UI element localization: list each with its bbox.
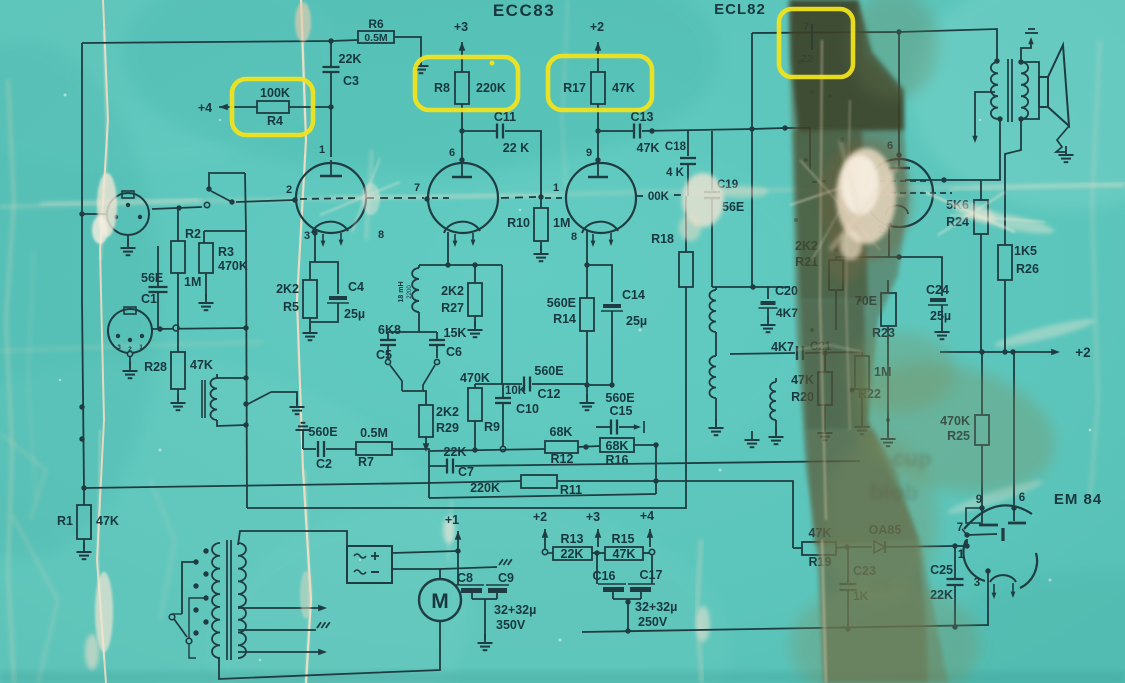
svg-text:4K7: 4K7 xyxy=(776,306,798,320)
svg-text:R3: R3 xyxy=(218,245,234,259)
svg-text:R5: R5 xyxy=(283,300,299,314)
svg-text:R9: R9 xyxy=(484,420,500,434)
svg-text:18 mH: 18 mH xyxy=(398,281,405,302)
svg-text:4K7: 4K7 xyxy=(771,340,794,354)
svg-text:220K: 220K xyxy=(476,81,506,95)
svg-text:+3: +3 xyxy=(454,20,468,34)
svg-text:6: 6 xyxy=(449,147,455,159)
svg-text:7: 7 xyxy=(803,21,809,33)
svg-text:22 K: 22 K xyxy=(503,141,529,155)
svg-text:C9: C9 xyxy=(498,571,514,585)
svg-text:C12: C12 xyxy=(538,387,561,401)
svg-text:3: 3 xyxy=(974,577,980,589)
svg-text:C16: C16 xyxy=(593,569,616,583)
svg-text:8: 8 xyxy=(571,231,577,243)
svg-text:C20: C20 xyxy=(775,284,798,298)
svg-text:R8: R8 xyxy=(434,81,450,95)
svg-text:68K: 68K xyxy=(550,425,573,439)
svg-text:8: 8 xyxy=(378,229,384,241)
svg-text:C2: C2 xyxy=(316,457,332,471)
svg-text:C4: C4 xyxy=(348,280,364,294)
svg-text:2K2: 2K2 xyxy=(441,284,464,298)
svg-text:2K2: 2K2 xyxy=(276,282,299,296)
svg-text:C6: C6 xyxy=(446,345,462,359)
svg-text:0.5M: 0.5M xyxy=(360,426,388,440)
svg-text:560E: 560E xyxy=(547,296,576,310)
svg-text:47K: 47K xyxy=(96,514,119,528)
svg-text:+1: +1 xyxy=(445,513,459,527)
svg-text:C18: C18 xyxy=(665,141,687,153)
svg-text:1: 1 xyxy=(139,344,143,351)
svg-text:1: 1 xyxy=(958,549,965,561)
svg-text:47K: 47K xyxy=(637,141,660,155)
svg-text:560E: 560E xyxy=(308,425,337,439)
svg-text:R6: R6 xyxy=(368,17,384,31)
svg-text:22K: 22K xyxy=(444,445,467,459)
svg-text:1: 1 xyxy=(319,144,325,156)
svg-text:0.5M: 0.5M xyxy=(364,32,388,44)
svg-text:470K: 470K xyxy=(460,371,490,385)
svg-text:+2: +2 xyxy=(1075,345,1090,360)
svg-text:47K: 47K xyxy=(190,358,213,372)
svg-text:C10: C10 xyxy=(516,402,539,416)
svg-text:15K: 15K xyxy=(444,326,467,340)
svg-text:1M: 1M xyxy=(553,216,570,230)
svg-text:32+32µ: 32+32µ xyxy=(494,603,536,617)
svg-text:+4: +4 xyxy=(198,101,212,115)
svg-text:R7: R7 xyxy=(358,455,374,469)
svg-text:R27: R27 xyxy=(441,301,464,315)
svg-text:7: 7 xyxy=(957,522,963,534)
svg-text:R10: R10 xyxy=(507,216,530,230)
svg-text:7: 7 xyxy=(414,182,420,194)
svg-text:EM 84: EM 84 xyxy=(1054,491,1102,508)
svg-text:R1: R1 xyxy=(57,514,73,528)
svg-text:cup: cup xyxy=(892,446,931,471)
svg-text:R2: R2 xyxy=(185,227,201,241)
svg-text:C24: C24 xyxy=(926,283,949,297)
svg-text:32+32µ: 32+32µ xyxy=(635,600,677,614)
svg-text:560E: 560E xyxy=(605,391,634,405)
svg-text:4 K: 4 K xyxy=(666,167,685,179)
svg-text:6: 6 xyxy=(1019,492,1025,504)
svg-text:R4: R4 xyxy=(267,114,283,128)
svg-text:C14: C14 xyxy=(622,288,645,302)
svg-text:9: 9 xyxy=(976,494,982,506)
svg-text:C7: C7 xyxy=(458,465,474,479)
svg-text:+2: +2 xyxy=(533,510,547,524)
svg-text:22K: 22K xyxy=(561,547,584,561)
svg-text:R15: R15 xyxy=(612,532,635,546)
svg-text:100K: 100K xyxy=(260,86,290,100)
svg-text:10K: 10K xyxy=(505,385,527,397)
svg-text:C8: C8 xyxy=(457,571,473,585)
svg-text:56E: 56E xyxy=(722,200,744,214)
svg-text:R17: R17 xyxy=(563,81,586,95)
svg-text:R14: R14 xyxy=(553,312,576,326)
svg-text:350V: 350V xyxy=(496,618,526,632)
svg-text:ECC83: ECC83 xyxy=(493,1,555,20)
svg-text:M: M xyxy=(431,590,449,613)
svg-text:C3: C3 xyxy=(343,74,359,88)
svg-text:47K: 47K xyxy=(613,547,636,561)
svg-text:C1: C1 xyxy=(141,292,157,306)
svg-text:3S: 3S xyxy=(869,576,891,596)
svg-text:25µ: 25µ xyxy=(344,307,365,321)
svg-text:250V: 250V xyxy=(638,615,668,629)
svg-text:2: 2 xyxy=(286,184,292,196)
svg-text:R29: R29 xyxy=(436,421,459,435)
svg-text:+4: +4 xyxy=(640,509,654,523)
svg-text:3: 3 xyxy=(117,344,121,351)
svg-text:6K8: 6K8 xyxy=(378,323,401,337)
svg-text:C17: C17 xyxy=(640,568,663,582)
svg-text:2K2: 2K2 xyxy=(436,405,459,419)
svg-text:R28: R28 xyxy=(144,360,167,374)
svg-text:2200: 2200 xyxy=(407,285,413,299)
svg-text:R13: R13 xyxy=(561,532,584,546)
svg-text:R18: R18 xyxy=(651,232,674,246)
svg-text:R26: R26 xyxy=(1016,262,1039,276)
svg-text:ECL82: ECL82 xyxy=(714,1,766,18)
svg-text:25µ: 25µ xyxy=(930,309,951,323)
svg-text:1M: 1M xyxy=(184,275,201,289)
svg-text:22: 22 xyxy=(801,53,813,65)
svg-text:9: 9 xyxy=(586,147,592,159)
svg-text:560E: 560E xyxy=(534,364,563,378)
svg-text:+2: +2 xyxy=(590,20,604,34)
svg-text:56E: 56E xyxy=(141,271,163,285)
svg-text:47K: 47K xyxy=(612,81,635,95)
svg-text:C25: C25 xyxy=(930,563,953,577)
svg-text:220K: 220K xyxy=(470,481,500,495)
svg-text:blob: blob xyxy=(870,479,919,505)
svg-text:C15: C15 xyxy=(610,404,633,418)
svg-text:1K5: 1K5 xyxy=(1014,244,1037,258)
svg-text:+3: +3 xyxy=(586,510,600,524)
svg-text:470K: 470K xyxy=(218,259,248,273)
svg-text:25µ: 25µ xyxy=(626,314,647,328)
svg-text:1: 1 xyxy=(553,182,559,194)
svg-text:68K: 68K xyxy=(606,439,629,453)
svg-text:00K: 00K xyxy=(648,191,670,203)
svg-text:3: 3 xyxy=(304,230,310,242)
svg-text:22K: 22K xyxy=(339,52,362,66)
